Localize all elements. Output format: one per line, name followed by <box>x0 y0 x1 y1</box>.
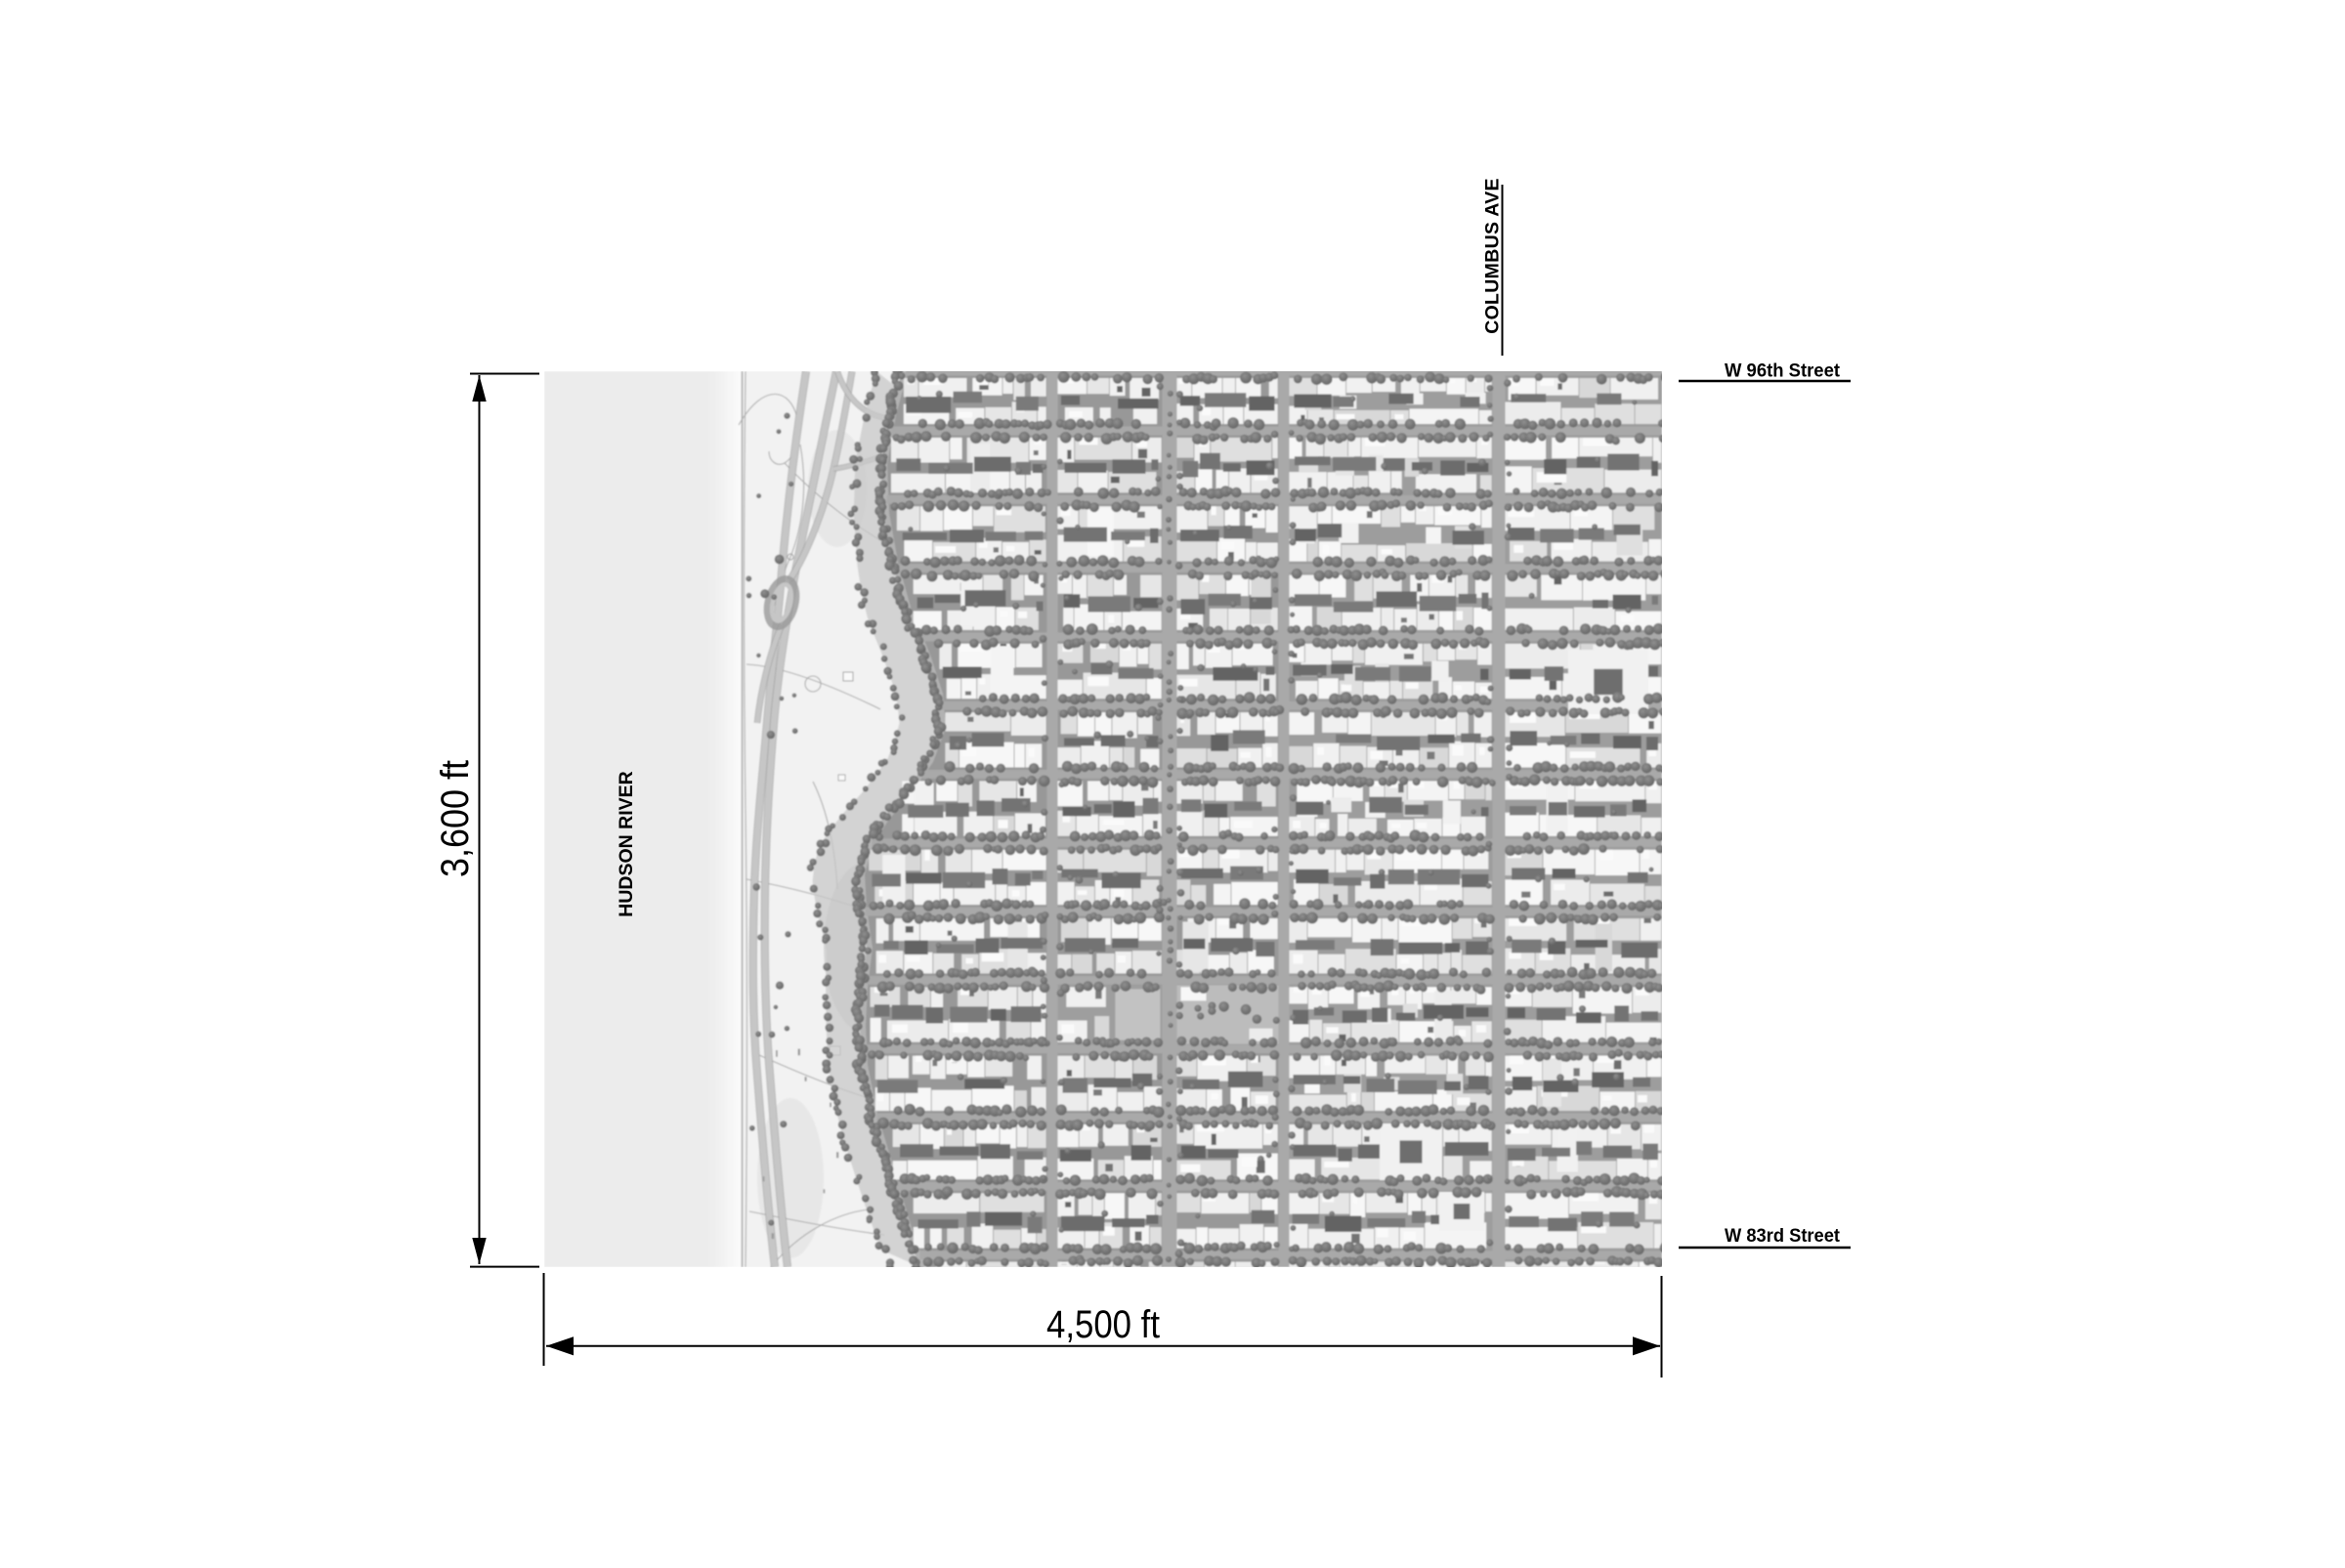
svg-text:4,500 ft: 4,500 ft <box>1046 1303 1160 1346</box>
svg-text:3,600 ft: 3,600 ft <box>434 760 477 877</box>
svg-text:HUDSON RIVER: HUDSON RIVER <box>616 771 637 917</box>
svg-text:COLUMBUS AVE: COLUMBUS AVE <box>1482 178 1504 334</box>
svg-text:W 96th Street: W 96th Street <box>1725 360 1840 382</box>
svg-text:W 83rd Street: W 83rd Street <box>1725 1225 1840 1247</box>
